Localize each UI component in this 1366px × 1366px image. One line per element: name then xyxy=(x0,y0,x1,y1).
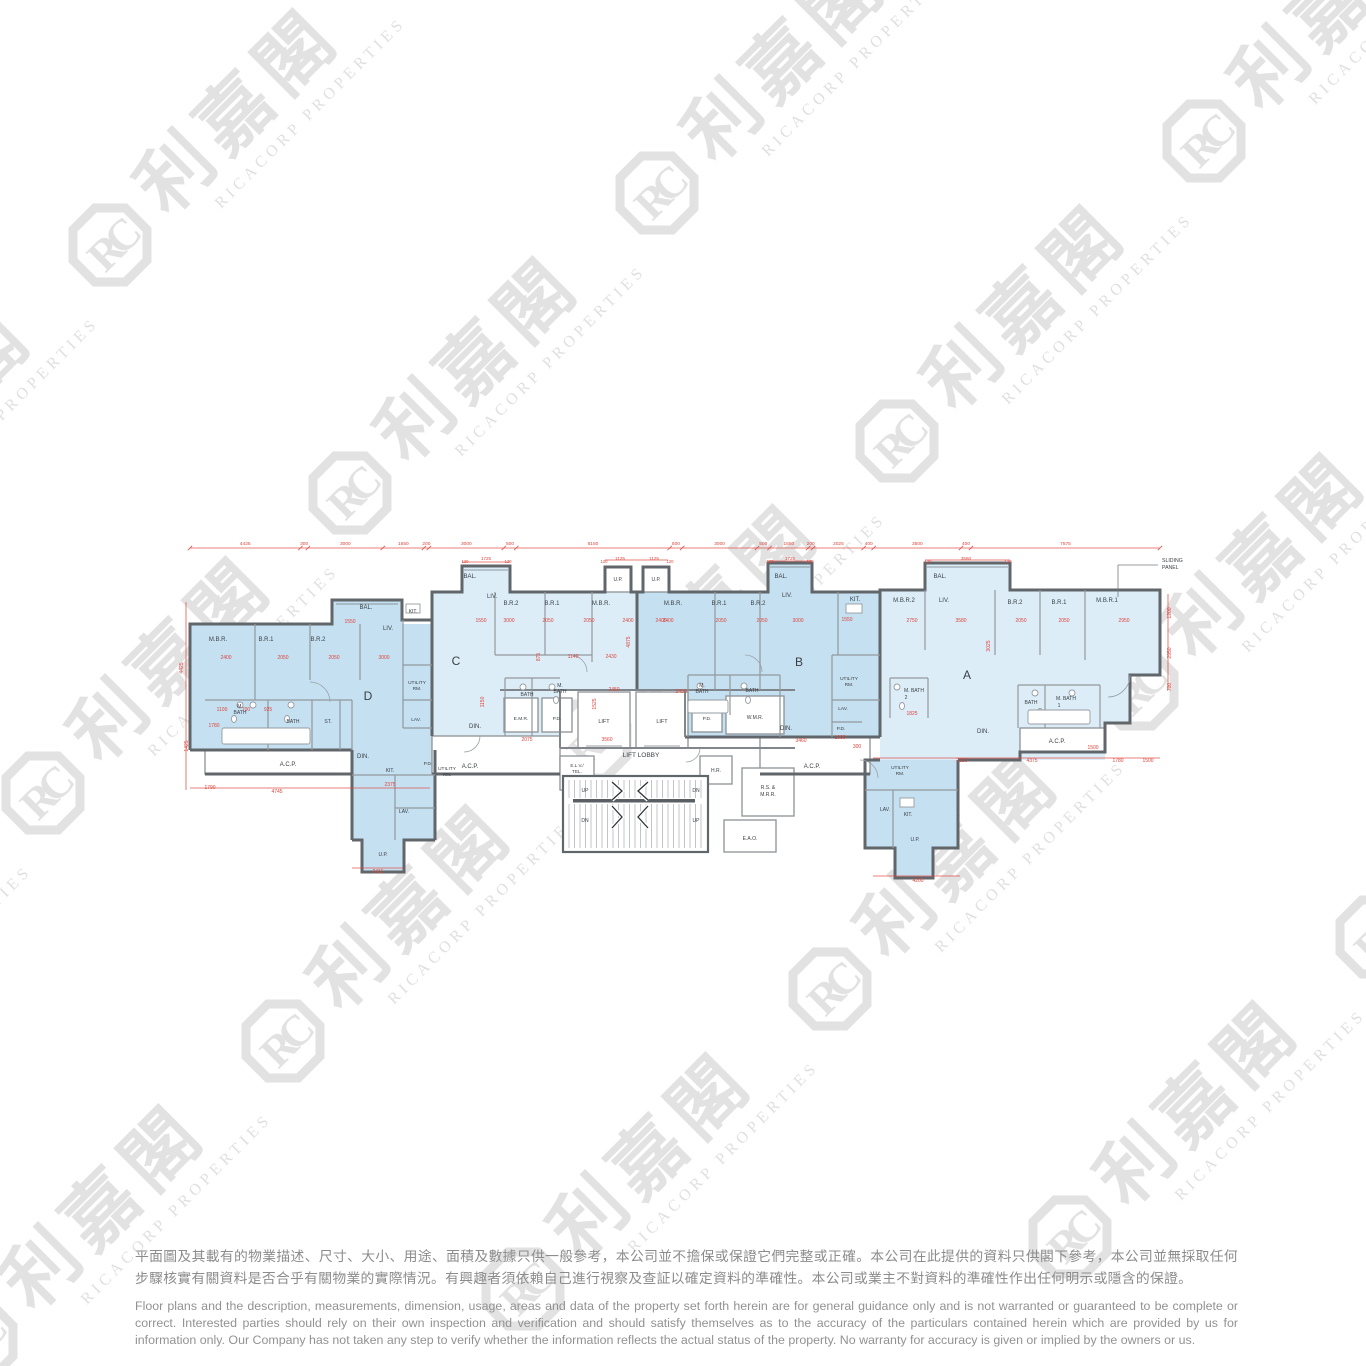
room-label: LIV. xyxy=(939,598,949,604)
room-label: RM. xyxy=(845,682,854,688)
top-dimension-row: 4425300300016502003000500615050030005001… xyxy=(188,541,1162,550)
dimension-label: 2050 xyxy=(277,655,288,661)
dimension-label: 4425 xyxy=(240,541,251,547)
room-label: M.B.R. xyxy=(592,601,611,607)
dimension-label: 3560 xyxy=(961,556,972,561)
room-label: LIFT LOBBY xyxy=(623,752,660,759)
room-label: W.M.R. xyxy=(747,715,763,721)
room-label: E.M.R. xyxy=(514,716,529,722)
dimension-label: 3560 xyxy=(601,737,612,743)
dimension-label: 3460 xyxy=(795,738,806,744)
dimension-label: 1600 xyxy=(834,735,845,741)
room-label: UTILITY xyxy=(438,766,457,772)
dimension-label: 3000 xyxy=(792,618,803,624)
dimension-label: 2950 xyxy=(1167,647,1173,658)
dimension-label: 2025 xyxy=(833,541,844,547)
dimension-label: 1500 xyxy=(1142,758,1153,764)
floor-plan-drawing: 4425300300016502003000500615050030005001… xyxy=(0,0,1366,1366)
dimension-label: 120 xyxy=(767,559,775,564)
dimension-label: 400 xyxy=(865,541,873,547)
room-label: A.C.P. xyxy=(462,764,479,770)
room-label: BAL. xyxy=(933,574,946,580)
room-label: B.R.2 xyxy=(310,637,326,643)
room-label: BATH xyxy=(1025,700,1038,706)
dimension-label: 120 xyxy=(1005,559,1013,564)
room-label: B.R.1 xyxy=(1051,600,1067,606)
room-label: KIT. xyxy=(409,609,418,615)
dimension-label: 925 xyxy=(264,707,273,713)
room-label: DN xyxy=(581,818,589,824)
dimension-label: 1425 xyxy=(184,740,190,751)
unit-letter: B xyxy=(795,655,803,669)
dimension-label: 1725 xyxy=(785,556,796,561)
dimension-label: 2750 xyxy=(906,618,917,624)
dimension-label: 3000 xyxy=(378,655,389,661)
room-label: 1 xyxy=(1058,703,1061,709)
room-label: DIN. xyxy=(977,729,989,735)
room-label: A.C.P. xyxy=(280,762,297,768)
dimension-label: 1550 xyxy=(475,618,486,624)
dimension-label: 3000 xyxy=(340,541,351,547)
room-label: U.P. xyxy=(651,577,660,583)
room-label: BAL. xyxy=(463,574,476,580)
dimension-label: 6150 xyxy=(588,541,599,547)
dimension-label: 7575 xyxy=(1060,541,1071,547)
dimension-label: 120 xyxy=(505,559,513,564)
dimension-label: 200 xyxy=(422,541,430,547)
dimension-label: 120 xyxy=(925,559,933,564)
room-label: A.C.P. xyxy=(804,764,821,770)
dimension-label: 1790 xyxy=(204,785,215,791)
dimension-label: 2400 xyxy=(220,655,231,661)
dimension-label: 4425 xyxy=(179,662,185,673)
dimension-label: 1500 xyxy=(1087,745,1098,751)
room-label: DIN. xyxy=(469,724,481,730)
room-label: B.R.2 xyxy=(1007,600,1023,606)
room-label: UTILITY xyxy=(840,676,859,682)
room-label: P.D. xyxy=(703,716,712,722)
dimension-label: 1200 xyxy=(1167,607,1173,618)
room-label: UP xyxy=(693,818,701,824)
dimension-label: 4875 xyxy=(626,636,632,647)
unit-letter: D xyxy=(364,689,373,703)
room-label: KIT. xyxy=(904,812,913,818)
dimension-label: 1780 xyxy=(208,723,219,729)
dimension-label: 2050 xyxy=(542,618,553,624)
dimension-label: 1150 xyxy=(480,696,486,707)
room-label: LIFT xyxy=(656,719,668,725)
room-label: PANEL xyxy=(1162,565,1179,571)
room-label: U.P. xyxy=(910,837,919,843)
room-label: BATH xyxy=(696,689,709,695)
dimension-label: 2050 xyxy=(756,618,767,624)
dimension-label: 400 xyxy=(962,541,970,547)
dimension-label: 1125 xyxy=(615,556,625,561)
dimension-label: 1650 xyxy=(398,541,409,547)
room-label: LIFT xyxy=(598,719,610,725)
dimension-label: 1550 xyxy=(841,617,852,623)
dimension-label: 200 xyxy=(807,541,815,547)
room-label: E.A.O. xyxy=(743,836,758,842)
room-label: BAL. xyxy=(774,574,787,580)
dimension-label: 4200 xyxy=(912,878,923,884)
room-label: 2 xyxy=(905,695,908,701)
room-label: KIT. xyxy=(850,597,861,603)
dimension-label: 3500 xyxy=(912,541,923,547)
dimension-label: 500 xyxy=(759,541,767,547)
dimension-label: 1100 xyxy=(217,707,228,713)
room-label: DIN. xyxy=(357,754,369,760)
dimension-label: 1550 xyxy=(344,619,355,625)
dimension-label: 2075 xyxy=(521,737,532,743)
room-label: M.R.R. xyxy=(760,792,776,798)
dimension-label: 2050 xyxy=(1015,618,1026,624)
dimension-label: 2430 xyxy=(605,654,616,660)
room-label: P.D. xyxy=(837,726,846,732)
room-label: LIV. xyxy=(487,594,497,600)
dimension-label: 1140 xyxy=(568,654,579,660)
room-label: LAV. xyxy=(838,706,848,712)
dimension-label: 2400 xyxy=(655,618,666,624)
dimension-label: 500 xyxy=(672,541,680,547)
room-label: H.R. xyxy=(711,768,721,774)
floor-plan-page: RC利嘉閣RICACORP PROPERTIESRC利嘉閣RICACORP PR… xyxy=(0,0,1366,1366)
room-label: M. BATH xyxy=(904,688,924,694)
dimension-label: 1525 xyxy=(592,698,598,709)
room-label: BATH xyxy=(554,689,567,695)
dimension-label: 700 xyxy=(1167,683,1173,692)
dimension-label: 300 xyxy=(853,744,862,750)
room-label: ST. xyxy=(324,719,331,725)
dimension-label: 120 xyxy=(807,559,815,564)
room-label: UTILITY xyxy=(408,680,427,686)
disclaimer-chinese: 平面圖及其載有的物業描述、尺寸、大小、用途、面積及數據只供一般參考，本公司並不擔… xyxy=(135,1247,1238,1290)
room-label: LAV. xyxy=(411,717,421,723)
dimension-label: 2400 xyxy=(622,618,633,624)
dimension-label: 2125 xyxy=(956,758,967,764)
room-label: R.S. & xyxy=(761,785,776,791)
dimension-label: 1780 xyxy=(1112,758,1123,764)
room-label: DIN. xyxy=(780,726,792,732)
dimension-label: 3000 xyxy=(503,618,514,624)
dimension-label: 2375 xyxy=(384,782,395,788)
room-label: BAL. xyxy=(359,605,372,611)
room-label: UTILITY xyxy=(891,765,910,771)
disclaimer-block: 平面圖及其載有的物業描述、尺寸、大小、用途、面積及數據只供一般參考，本公司並不擔… xyxy=(135,1247,1238,1350)
room-label: B.R.2 xyxy=(750,601,766,607)
room-label: B.R.1 xyxy=(711,601,727,607)
room-label: UP xyxy=(582,788,590,794)
unit-letter: A xyxy=(963,668,971,682)
dimension-label: 2050 xyxy=(1058,618,1069,624)
dimension-label: 120 xyxy=(601,559,609,564)
dimension-label: 2950 xyxy=(1118,618,1129,624)
dimension-label: 2050 xyxy=(583,618,594,624)
dimension-label: 1725 xyxy=(481,556,492,561)
room-label: U.P. xyxy=(613,577,622,583)
dimension-label: 1825 xyxy=(906,711,917,717)
room-label: U.P. xyxy=(378,852,387,858)
room-label: M. BATH xyxy=(1056,696,1076,702)
room-label: LAV. xyxy=(880,807,890,813)
room-label: LAV. xyxy=(399,809,409,815)
room-label: BATH xyxy=(287,719,300,725)
room-label: DN xyxy=(692,788,700,794)
unit-a-fill xyxy=(865,563,1160,878)
dimension-label: 2450 xyxy=(608,687,619,693)
dimension-label: 875 xyxy=(536,653,542,662)
room-label: SLIDING xyxy=(1162,558,1183,564)
unit-letter: C xyxy=(452,654,461,668)
room-label: BATH xyxy=(746,688,759,694)
room-label: E.L.V./ xyxy=(570,763,584,768)
room-label: RM. xyxy=(896,771,905,777)
dimension-label: 3025 xyxy=(986,640,992,651)
room-label: LIV. xyxy=(782,593,792,599)
room-label: RM. xyxy=(443,772,452,778)
dimension-label: 2450 xyxy=(675,689,686,695)
dimension-label: 120 xyxy=(667,559,675,564)
room-label: P.D. xyxy=(553,716,562,722)
room-label: P.D. xyxy=(424,761,433,767)
room-label: A.C.P. xyxy=(1049,739,1066,745)
dimension-label: 3000 xyxy=(461,541,472,547)
dimension-label: 300 xyxy=(300,541,308,547)
dimension-label: 2415 xyxy=(372,869,383,875)
room-label: KIT. xyxy=(386,768,395,774)
dimension-label: 1550 xyxy=(784,541,795,547)
room-label: M.B.R. xyxy=(664,601,683,607)
room-label: B.R.1 xyxy=(258,637,274,643)
dimension-label: 120 xyxy=(462,559,470,564)
room-label: BATH xyxy=(234,710,247,716)
room-label: B.R.1 xyxy=(544,601,560,607)
room-label: TEL. xyxy=(572,769,582,774)
room-label: LIV. xyxy=(383,626,393,632)
dimension-label: 4745 xyxy=(271,789,282,795)
room-label: M.B.R.2 xyxy=(893,598,915,604)
dimension-label: 1125 xyxy=(649,556,659,561)
room-label: M.B.R. xyxy=(209,637,228,643)
disclaimer-english: Floor plans and the description, measure… xyxy=(135,1298,1238,1350)
dimension-label: 4375 xyxy=(1026,758,1037,764)
room-label: B.R.2 xyxy=(503,601,519,607)
room-label: RM. xyxy=(413,686,422,692)
dimension-label: 2050 xyxy=(715,618,726,624)
dimension-label: 2050 xyxy=(328,655,339,661)
dimension-label: 500 xyxy=(506,541,514,547)
room-label: BATH xyxy=(521,692,534,698)
room-label: M.B.R.1 xyxy=(1096,598,1118,604)
dimension-label: 3000 xyxy=(714,541,725,547)
dimension-label: 3580 xyxy=(955,618,966,624)
